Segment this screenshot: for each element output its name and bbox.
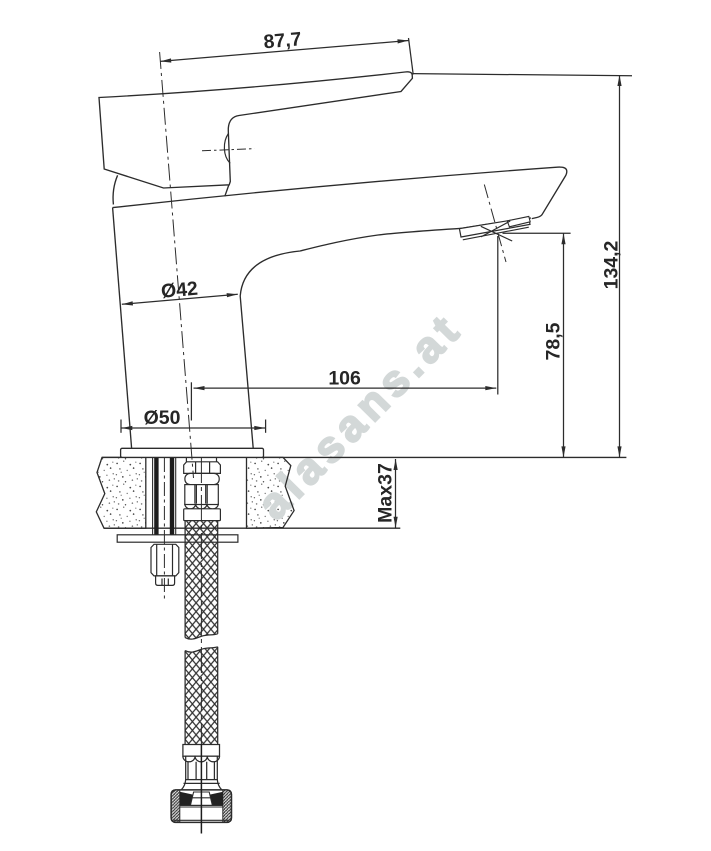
svg-text:Ø50: Ø50 bbox=[144, 407, 181, 429]
svg-text:87,7: 87,7 bbox=[263, 28, 303, 53]
svg-text:Ø42: Ø42 bbox=[160, 278, 199, 303]
svg-text:Max37: Max37 bbox=[374, 463, 396, 523]
svg-text:134,2: 134,2 bbox=[601, 240, 623, 289]
svg-text:78,5: 78,5 bbox=[543, 322, 565, 360]
svg-text:106: 106 bbox=[328, 368, 361, 390]
